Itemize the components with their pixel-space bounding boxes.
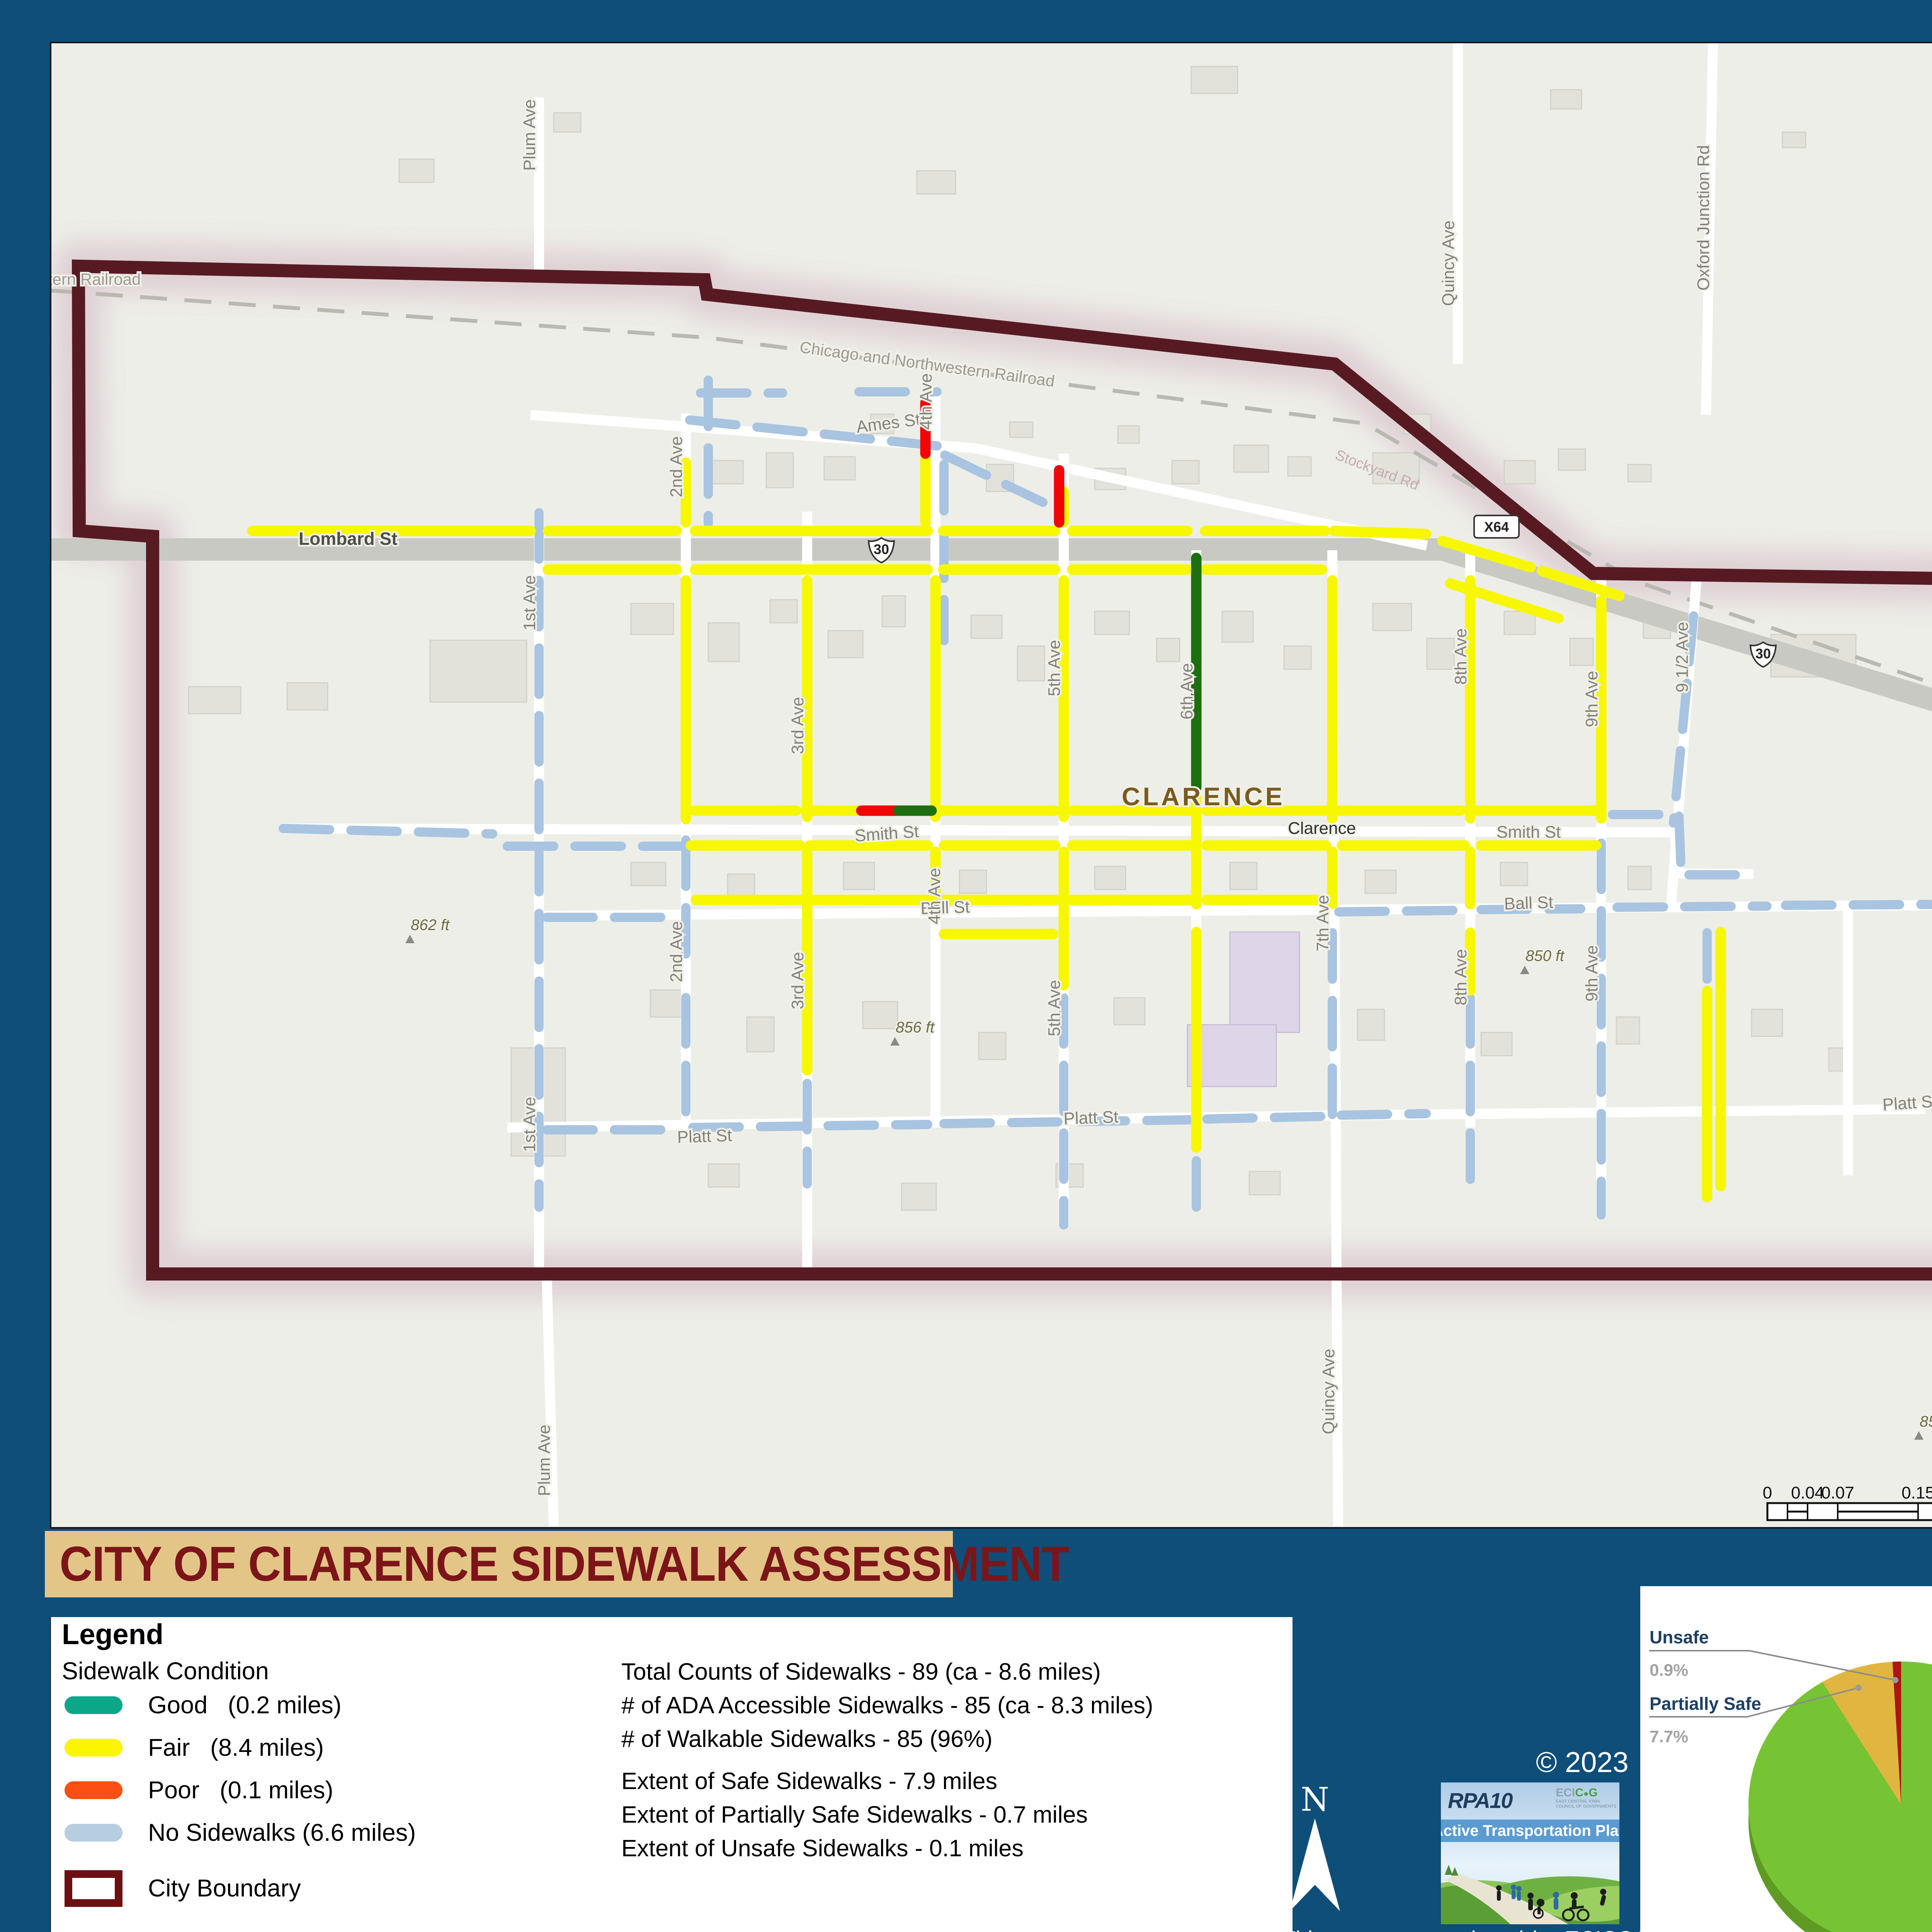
building-footprint <box>708 461 743 484</box>
legend-swatch-icon <box>65 1739 122 1757</box>
elevation-label: 851 ft <box>1920 1413 1932 1430</box>
map-label: 2nd Ave <box>667 436 686 497</box>
svg-text:0: 0 <box>1763 1483 1772 1502</box>
stat-line: # of Walkable Sidewalks - 85 (96%) <box>621 1722 1286 1756</box>
map-label: Platt St <box>677 1126 732 1147</box>
building-footprint <box>287 683 328 710</box>
north-arrow-icon <box>1290 1818 1340 1911</box>
building-footprint <box>1114 998 1145 1025</box>
map-panel: 3030X64stern RailroadChicago and Northwe… <box>50 42 1932 1529</box>
building-footprint <box>1284 646 1311 669</box>
building-footprint <box>863 1002 898 1029</box>
stat-line: Extent of Safe Sidewalks - 7.9 miles <box>621 1764 1286 1798</box>
sidewalk-none <box>1341 1114 1426 1115</box>
legend-item-city-boundary: City Boundary <box>65 1877 301 1900</box>
building-footprint <box>1095 866 1126 889</box>
legend-item-label: Poor (0.1 miles) <box>148 1776 333 1804</box>
map-label: 3rd Ave <box>788 952 807 1009</box>
building-footprint <box>631 862 666 886</box>
legend-item-label: Fair (8.4 miles) <box>148 1734 324 1762</box>
building-footprint <box>1504 461 1535 484</box>
building-footprint <box>1570 638 1593 665</box>
building-footprint <box>844 862 874 889</box>
building-footprint <box>1373 604 1412 631</box>
map-label: 5th Ave <box>1045 980 1064 1036</box>
building-footprint <box>1249 1172 1280 1195</box>
map-label: Oxford Junction Rd <box>1694 145 1713 291</box>
building-footprint <box>554 113 581 132</box>
building-footprint <box>770 600 797 623</box>
map-label: 5th Ave <box>1045 640 1064 696</box>
map-label: Clarence <box>1288 819 1356 838</box>
legend-swatch-icon <box>65 1696 122 1714</box>
svg-text:0.04: 0.04 <box>1791 1483 1824 1502</box>
stat-line: # of ADA Accessible Sidewalks - 85 (ca -… <box>621 1689 1286 1722</box>
map-label: Lombard St <box>299 529 398 549</box>
route-shield: X64 <box>1474 515 1519 538</box>
map-label: CLARENCE <box>1122 782 1285 811</box>
building-footprint <box>1010 422 1033 437</box>
building-footprint <box>747 1017 774 1052</box>
building-footprint <box>901 1183 936 1210</box>
credit-line1: This map was produced by ECICOG for <box>1282 1926 1686 1932</box>
pie-chart-panel: Unsafe0.9%Partially Safe7.7%Safe91.3% <box>1640 1586 1932 1932</box>
sidewalk-none <box>283 828 493 834</box>
building-footprint <box>882 596 905 627</box>
map-label: Platt St <box>1882 1092 1932 1114</box>
map-label: 9 1/2 Ave <box>1673 622 1692 692</box>
sidewalk-fair <box>1334 531 1426 534</box>
page-title: CITY OF CLARENCE SIDEWALK ASSESSMENT <box>45 1536 1069 1593</box>
north-label: N <box>1282 1781 1348 1818</box>
elevation-label: 850 ft <box>1526 947 1565 964</box>
legend-swatch-icon <box>65 1824 122 1842</box>
legend-item-label: City Boundary <box>148 1874 301 1902</box>
legend-swatch-icon <box>65 1781 122 1799</box>
map-label: stern Railroad <box>51 270 141 288</box>
legend-item-poor: Poor (0.1 miles) <box>65 1779 333 1802</box>
city-boundary-swatch-icon <box>65 1870 122 1907</box>
map-label: 9th Ave <box>1582 945 1601 1002</box>
building-footprint <box>917 171 956 194</box>
building-footprint <box>1616 1017 1639 1044</box>
map-label: 2nd Ave <box>667 921 686 982</box>
building-footprint <box>1551 90 1582 109</box>
legend-item-fair: Fair (8.4 miles) <box>65 1736 324 1759</box>
logo-scene <box>1441 1842 1619 1924</box>
building-footprint <box>824 457 855 480</box>
map-label: Smith St <box>1497 823 1561 842</box>
building-footprint <box>430 640 527 702</box>
legend-subtitle: Sidewalk Condition <box>62 1657 269 1685</box>
building-footprint <box>1427 638 1454 669</box>
building-footprint <box>399 159 434 182</box>
building-footprint <box>1222 611 1253 642</box>
pie-label: Unsafe <box>1650 1627 1709 1647</box>
building-footprint <box>766 453 793 488</box>
pie-label: Partially Safe <box>1650 1694 1761 1714</box>
map-label: 3rd Ave <box>788 697 807 754</box>
building-footprint <box>1191 66 1238 94</box>
building-footprint <box>650 990 681 1017</box>
svg-text:30: 30 <box>1755 646 1771 662</box>
map-label: Ball St <box>1504 893 1554 913</box>
svg-text:0.15: 0.15 <box>1901 1483 1932 1502</box>
building-footprint <box>1095 611 1129 634</box>
elevation-label: 862 ft <box>411 917 450 934</box>
svg-text:X64: X64 <box>1484 519 1509 535</box>
map-label: 1st Ave <box>520 1097 539 1152</box>
building-footprint <box>1017 646 1044 681</box>
elevation-label: 856 ft <box>896 1019 935 1036</box>
building-footprint <box>631 604 673 634</box>
map-label: Quincy Ave <box>1319 1349 1338 1434</box>
building-footprint <box>1481 1032 1512 1056</box>
building-footprint <box>828 631 863 658</box>
title-bar: CITY OF CLARENCE SIDEWALK ASSESSMENT <box>45 1531 953 1597</box>
logo-banner: Active Transportation Plan <box>1441 1820 1619 1842</box>
copyright: © 2023 <box>1536 1746 1629 1779</box>
legend-item-label: Good (0.2 miles) <box>148 1691 342 1719</box>
sidewalk-statistics: Total Counts of Sidewalks - 89 (ca - 8.6… <box>621 1655 1286 1865</box>
map-label: 4th Ave <box>917 373 935 430</box>
svg-text:0.07: 0.07 <box>1821 1483 1854 1502</box>
map-label: 1st Ave <box>520 575 539 631</box>
building-footprint <box>959 870 986 893</box>
building-footprint <box>1288 457 1311 476</box>
sidewalk-none <box>1679 816 1681 874</box>
legend-item-no-sidewalks: No Sidewalks (6.6 miles) <box>65 1821 416 1844</box>
map-label: 4th Ave <box>925 868 944 924</box>
map-label: 8th Ave <box>1451 949 1470 1005</box>
ecicog-line2: COUNCIL OF GOVERNMENTS <box>1556 1804 1616 1809</box>
production-credit: This map was produced by ECICOG for RPA1… <box>1282 1926 1686 1932</box>
building-footprint <box>1500 862 1527 886</box>
building-footprint <box>1156 638 1180 662</box>
building-footprint <box>1357 1009 1384 1040</box>
legend-title: Legend <box>62 1618 163 1651</box>
svg-text:30: 30 <box>874 541 889 557</box>
building-footprint <box>1752 1009 1782 1036</box>
pie-chart: Unsafe0.9%Partially Safe7.7%Safe91.3% <box>1640 1586 1932 1932</box>
building-footprint <box>189 687 241 714</box>
logo-rpa10-text: RPA10 <box>1448 1788 1512 1813</box>
building-footprint <box>728 874 755 897</box>
map-label: Plum Ave <box>520 99 539 171</box>
map-label: Plum Ave <box>535 1425 554 1496</box>
building-footprint <box>979 1032 1006 1060</box>
legend-panel: Legend Sidewalk Condition Good (0.2 mile… <box>50 1617 1293 1932</box>
building-footprint <box>1234 445 1269 472</box>
legend-item-label: No Sidewalks (6.6 miles) <box>148 1819 416 1847</box>
building-footprint <box>708 1164 739 1187</box>
building-footprint <box>1628 464 1651 482</box>
pie-label: 7.7% <box>1650 1727 1688 1746</box>
rpa10-logo: RPA10 ECIC●G EAST CENTRAL IOWA COUNCIL O… <box>1441 1782 1619 1924</box>
stat-line: Extent of Partially Safe Sidewalks - 0.7… <box>621 1798 1286 1832</box>
legend-item-good: Good (0.2 miles) <box>65 1694 342 1717</box>
building-footprint <box>1118 426 1139 443</box>
map-label: 9th Ave <box>1582 671 1601 727</box>
building-footprint <box>1782 132 1806 148</box>
building-footprint <box>1230 932 1299 1032</box>
map-label: Platt St <box>1063 1107 1119 1128</box>
ecicog-line1: EAST CENTRAL IOWA <box>1556 1799 1616 1804</box>
stat-line: Total Counts of Sidewalks - 89 (ca - 8.6… <box>621 1655 1286 1689</box>
building-footprint <box>1558 449 1585 470</box>
map-label: Quincy Ave <box>1439 220 1458 306</box>
stat-line: Extent of Unsafe Sidewalks - 0.1 miles <box>621 1832 1286 1865</box>
building-footprint <box>971 615 1002 638</box>
building-footprint <box>1172 461 1199 484</box>
building-footprint <box>1365 870 1396 893</box>
map-canvas: 3030X64stern RailroadChicago and Northwe… <box>51 43 1932 1527</box>
building-footprint <box>1628 866 1651 889</box>
pie-label: 0.9% <box>1650 1661 1688 1680</box>
building-footprint <box>708 623 739 662</box>
ecicog-logo: ECIC●G EAST CENTRAL IOWA COUNCIL OF GOVE… <box>1556 1787 1616 1809</box>
building-footprint <box>1230 862 1257 889</box>
north-arrow: N <box>1282 1781 1348 1913</box>
map-label: 7th Ave <box>1313 895 1332 951</box>
map-label: 6th Ave <box>1177 663 1196 719</box>
map-label: 8th Ave <box>1451 628 1470 685</box>
